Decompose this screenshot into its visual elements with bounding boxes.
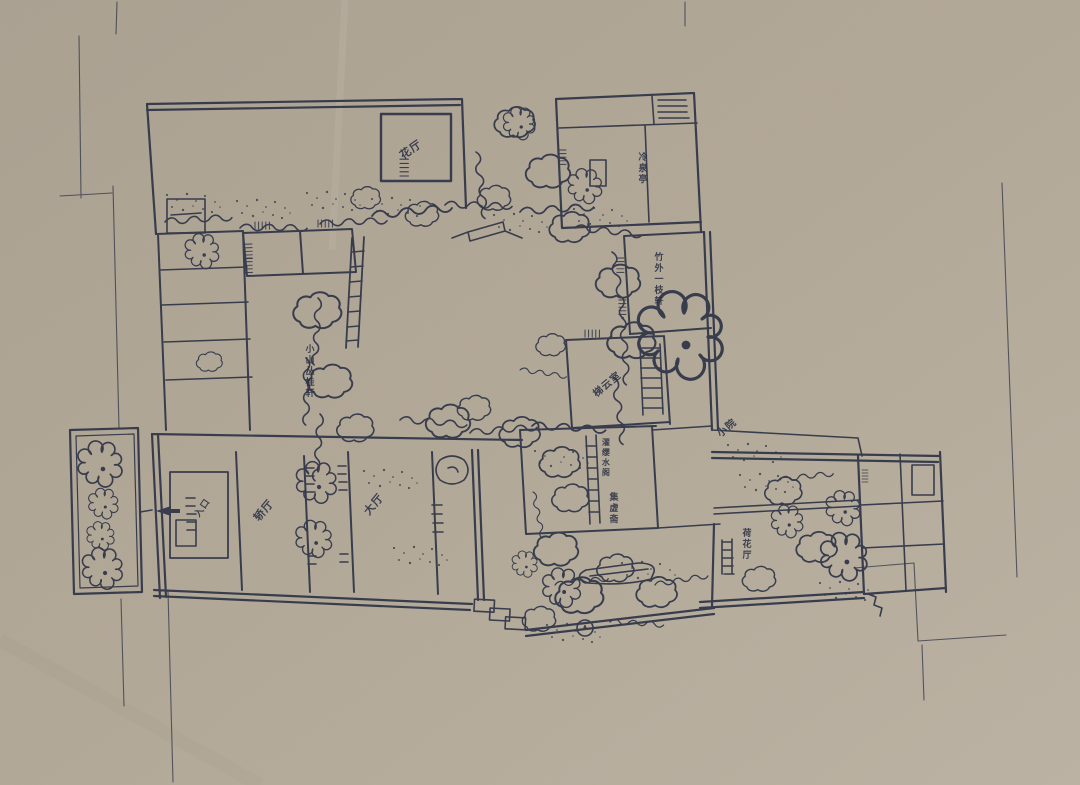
label-room-northeast: 冷泉亭: [636, 152, 645, 185]
label-lotus-hall: 荷花厅: [740, 528, 749, 561]
label-water-pavilion: 濯缨水阁: [601, 438, 609, 478]
label-hall-southwest: 小山丛桂轩: [303, 344, 312, 399]
sketch-photo: 花厅 冷泉亭 竹外一枝轩 小山丛桂轩 梯云室 濯缨水阁 集虚斋 小院 荷花厅 轿…: [0, 0, 1080, 785]
floor-plan-drawing: [0, 0, 1080, 785]
label-gallery-east: 竹外一枝轩: [652, 252, 661, 307]
label-studio: 集虚斋: [607, 492, 616, 525]
